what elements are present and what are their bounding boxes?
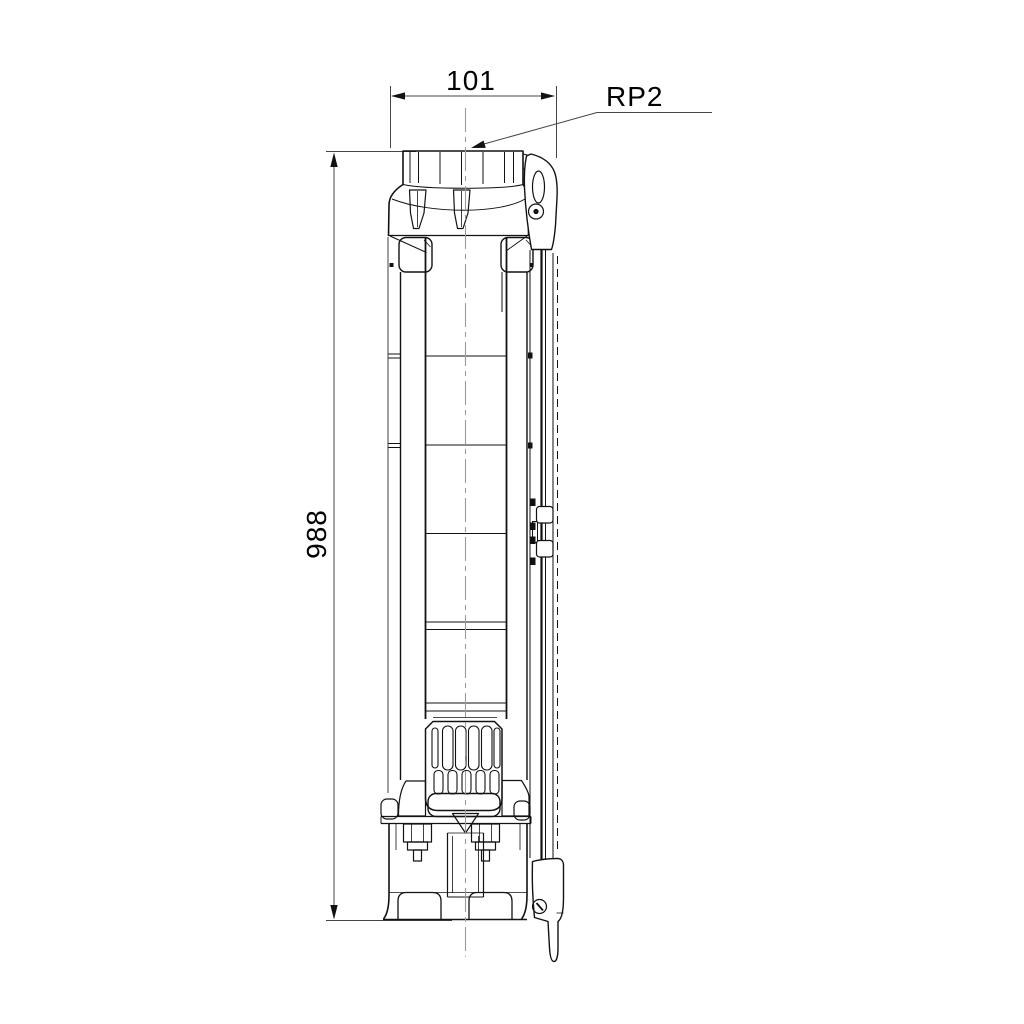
dimension-arrow-top (330, 153, 337, 168)
cable-clip-upper (537, 507, 554, 524)
width-dimension-label: 101 (446, 65, 496, 96)
thread-size-label: RP2 (606, 81, 663, 112)
thread-label-callout: RP2 (471, 81, 712, 148)
stud-bolt-right (472, 824, 500, 861)
joint-tick-marks (388, 354, 400, 448)
cable-clip-lower (537, 541, 554, 558)
stud-bolt-left (404, 824, 432, 861)
pump-outline (381, 151, 564, 962)
width-dimension: 101 (391, 65, 557, 158)
pump-technical-drawing: 101 988 RP2 (0, 0, 1024, 1024)
height-dimension-label: 988 (301, 509, 332, 559)
cable-guard-bracket (532, 859, 563, 962)
leader-arrow (471, 141, 486, 149)
discharge-head (403, 151, 532, 188)
dimension-arrow-right (541, 92, 555, 99)
discharge-shoulder (389, 185, 529, 253)
thread-lines (410, 152, 514, 185)
height-dimension: 988 (301, 152, 452, 921)
strap-screw-left (390, 263, 394, 267)
motor (383, 814, 527, 920)
dimension-arrow-bottom (330, 905, 337, 920)
suction-strainer (426, 722, 503, 817)
drawing-canvas: 101 988 RP2 (0, 0, 1024, 1024)
leader-line (475, 113, 712, 147)
motor-foot-left (398, 893, 441, 920)
chamber-stack (388, 237, 507, 793)
dimension-arrow-left (391, 92, 405, 99)
